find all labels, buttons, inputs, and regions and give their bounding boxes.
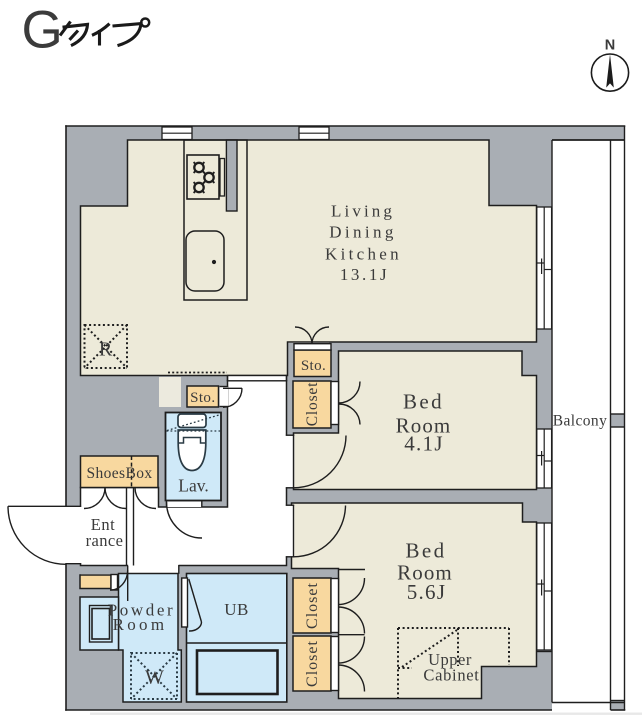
svg-text:ShoesBox: ShoesBox — [86, 465, 152, 482]
svg-text:Kitchen: Kitchen — [325, 245, 402, 264]
svg-text:W: W — [145, 667, 164, 689]
svg-text:Lav.: Lav. — [178, 476, 208, 496]
svg-text:UB: UB — [224, 600, 249, 619]
svg-text:Room: Room — [113, 615, 168, 634]
svg-text:Sto.: Sto. — [190, 390, 215, 406]
svg-text:Bed: Bed — [403, 390, 444, 414]
svg-text:Dining: Dining — [329, 223, 397, 242]
svg-text:4.1J: 4.1J — [404, 431, 444, 455]
svg-text:Living: Living — [331, 201, 395, 220]
svg-text:N: N — [605, 38, 615, 54]
svg-text:G: G — [22, 1, 63, 60]
svg-text:R: R — [99, 338, 113, 360]
svg-text:Closet: Closet — [304, 382, 321, 426]
svg-text:rance: rance — [86, 531, 124, 550]
svg-text:Closet: Closet — [304, 640, 321, 687]
svg-text:Bed: Bed — [405, 539, 446, 563]
svg-text:13.1J: 13.1J — [340, 265, 389, 284]
svg-text:Sto.: Sto. — [301, 358, 326, 374]
svg-text:Closet: Closet — [304, 582, 321, 629]
svg-text:Balcony: Balcony — [553, 413, 607, 430]
svg-text:Cabinet: Cabinet — [423, 666, 479, 685]
svg-text:5.6J: 5.6J — [407, 580, 447, 604]
